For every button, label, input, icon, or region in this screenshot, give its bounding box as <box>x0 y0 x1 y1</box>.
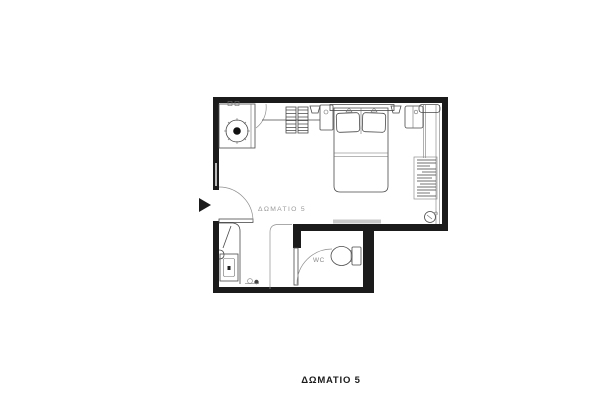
ledge <box>333 220 381 224</box>
wc-label: WC <box>313 257 325 264</box>
bathroom <box>219 223 292 289</box>
nightstand-left <box>320 105 333 130</box>
shelf-unit <box>419 105 440 113</box>
wc-door-arc <box>297 249 332 284</box>
pillow <box>362 108 386 132</box>
pillow <box>336 108 360 132</box>
entrance-arrow-icon <box>199 198 211 212</box>
wall-wc-right <box>363 231 374 293</box>
wall-bottom <box>213 287 374 293</box>
wall-left-lower <box>213 221 219 293</box>
sconce-lamp-icon <box>391 106 401 113</box>
room-label: ΔΩΜΑΤΙΟ 5 <box>258 206 306 213</box>
shower-partition <box>270 225 292 290</box>
wall-fixture <box>425 212 438 223</box>
chair-center <box>233 127 241 135</box>
bed-area <box>310 105 440 193</box>
entrance-door-leaf <box>219 219 253 222</box>
wall-wc-top <box>293 224 448 231</box>
wall-right <box>442 97 448 231</box>
wall-top <box>213 97 448 103</box>
floor-plan-drawing: ΔΩΜΑΤΙΟ 5 <box>0 0 600 400</box>
floorplan-page: ΔΩΜΑΤΙΟ 5 <box>0 0 600 400</box>
chair <box>224 118 250 144</box>
closet-swing-arc <box>256 104 266 128</box>
entrance <box>199 187 253 222</box>
sink <box>219 250 238 281</box>
bed <box>334 108 388 192</box>
floor-drain <box>245 279 259 285</box>
plan-caption: ΔΩΜΑΤΙΟ 5 <box>301 375 360 386</box>
headboard <box>330 105 394 111</box>
desk-area <box>219 102 255 149</box>
shower <box>219 223 240 284</box>
nightstand-right <box>405 106 423 128</box>
radiator <box>414 157 437 199</box>
wall-wc-jamb <box>293 224 301 248</box>
toilet <box>331 247 361 266</box>
sconce-lamp-icon <box>310 106 320 113</box>
entrance-door-arc <box>219 187 253 221</box>
shower-door-line <box>223 226 231 248</box>
